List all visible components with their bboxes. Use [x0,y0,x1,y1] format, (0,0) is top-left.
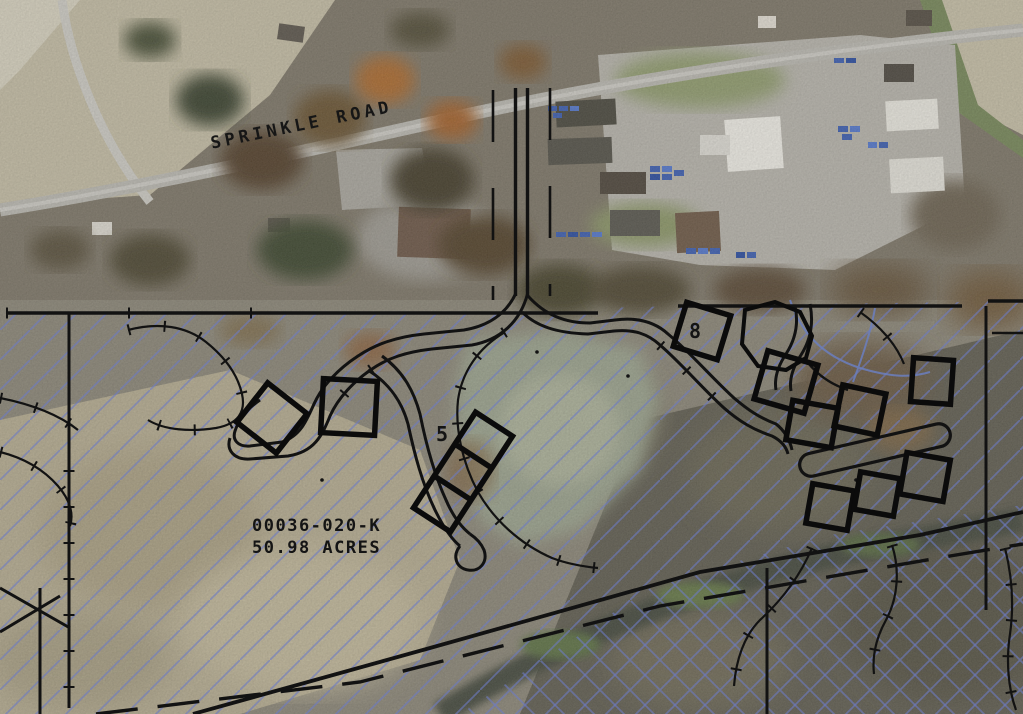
parcel-acreage-label: 50.98 ACRES [252,538,381,558]
parcel-hatch-overlay [0,301,1023,714]
building-number-5-label: 5 [436,422,448,446]
map-canvas[interactable]: SPRINKLE ROAD 00036-020-K 50.98 ACRES 5 … [0,0,1023,714]
parcel-id-label: 00036-020-K [252,516,381,536]
building-number-8-label: 8 [689,319,701,343]
aerial-plan-drawing [0,0,1023,714]
